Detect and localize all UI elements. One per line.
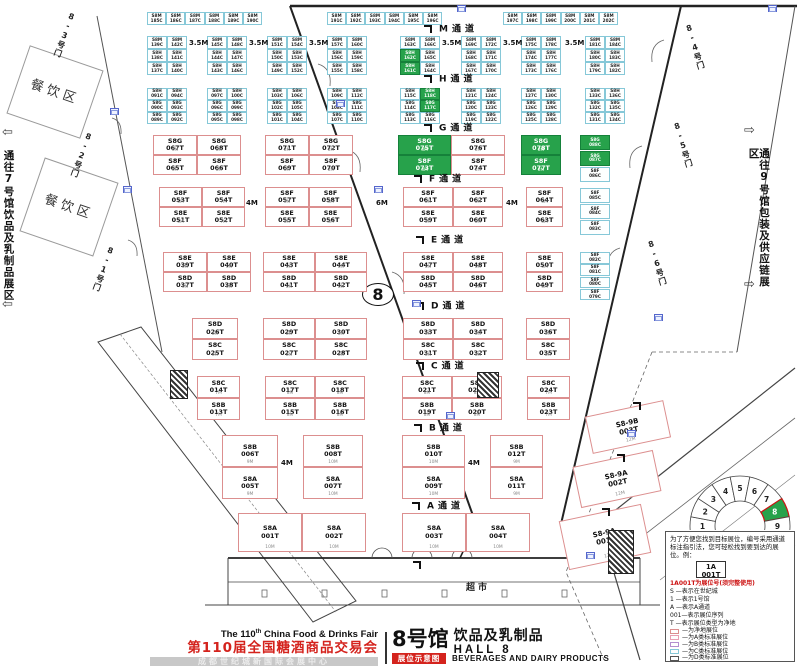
- booth[interactable]: S8F070T8M: [309, 155, 353, 175]
- booth[interactable]: S8D026T8M: [192, 318, 238, 339]
- booth[interactable]: S8H147C: [227, 49, 247, 62]
- booth[interactable]: S8G135C: [605, 100, 625, 112]
- booth[interactable]: S8G123C: [481, 100, 501, 112]
- venue-name: 成都世纪城新国际会展中心: [150, 657, 378, 666]
- booth[interactable]: S8H177C: [541, 49, 561, 62]
- fan-hall-number: 2: [703, 507, 708, 516]
- fire-hydrant-icon: [446, 412, 455, 419]
- booth[interactable]: S8G125C: [521, 112, 541, 124]
- booth[interactable]: S8C032T8M: [453, 339, 503, 360]
- booth[interactable]: S8E039T6M: [163, 252, 207, 272]
- booth[interactable]: S8M184C: [605, 36, 625, 49]
- hall-overview-fan: 123456789: [683, 468, 798, 530]
- booth[interactable]: S8E047T8M: [403, 252, 453, 272]
- booth[interactable]: S8M186C: [166, 12, 185, 25]
- booth[interactable]: S8H143C: [207, 62, 227, 75]
- booth[interactable]: S8H152C: [287, 62, 307, 75]
- booth[interactable]: S8G110C: [347, 112, 367, 124]
- booth[interactable]: S8B015T8M: [265, 398, 315, 420]
- booth[interactable]: S8G113C: [400, 112, 420, 124]
- fan-hall-number: 1: [700, 522, 705, 530]
- booth[interactable]: S8D036T8M: [526, 318, 570, 339]
- booth[interactable]: S8C031T8M: [403, 339, 453, 360]
- aisle-label: M通道: [424, 25, 504, 35]
- fan-hall-number: 4: [723, 487, 728, 496]
- footer-divider: [385, 632, 387, 664]
- booth[interactable]: S8H140C: [167, 62, 187, 75]
- booth[interactable]: S8M190C: [243, 12, 262, 25]
- booth[interactable]: S8M172C: [481, 36, 501, 49]
- booth[interactable]: S8H109C: [327, 88, 347, 100]
- booth[interactable]: S8H170C: [481, 62, 501, 75]
- booth[interactable]: S8H112C: [347, 88, 367, 100]
- fan-hall-number: 8: [772, 507, 777, 516]
- booth[interactable]: S8B012T9M: [490, 435, 543, 467]
- booth[interactable]: S8H183C: [605, 49, 625, 62]
- booth[interactable]: S8H091C: [147, 88, 167, 100]
- booth-type-swatch: [670, 656, 679, 661]
- booth[interactable]: S8F084C: [580, 204, 610, 219]
- booth[interactable]: S8C017T8M: [265, 376, 315, 398]
- booth[interactable]: S8H121C: [461, 88, 481, 100]
- booth[interactable]: S8H127C: [521, 88, 541, 100]
- legend-box: 为了方便您找到目标展位，编号采用通道标注指引法，您可轻松找到要到达的展位。例： …: [665, 531, 795, 662]
- aisle-marker-icon: [617, 454, 625, 462]
- dining-area-label: 餐饮区: [43, 193, 95, 222]
- booth[interactable]: S8A011T9M: [490, 467, 543, 499]
- booth[interactable]: S8F080C: [580, 277, 610, 289]
- booth[interactable]: S8G098C: [227, 112, 247, 124]
- booth[interactable]: S8G102C: [267, 100, 287, 112]
- footer-left: The 110th China Food & Drinks Fair 第110届…: [150, 629, 378, 666]
- booth[interactable]: S8G092C: [167, 112, 187, 124]
- booth-type-swatch: [670, 642, 679, 647]
- aisle-marker-icon: [414, 424, 422, 432]
- booth[interactable]: S8M202C: [599, 12, 618, 25]
- aisle-label: G通道: [424, 124, 504, 134]
- booth[interactable]: S8M188C: [205, 12, 224, 25]
- booth[interactable]: S8A003T10M: [402, 513, 466, 552]
- booth[interactable]: S8H176C: [541, 62, 561, 75]
- booth[interactable]: S8M166C: [420, 36, 440, 49]
- booth[interactable]: S8G114C: [400, 100, 420, 112]
- aisle-marker-icon: [424, 124, 432, 132]
- gap-dimension-label: 3.5M: [565, 40, 587, 48]
- legend-items: S —表示在世纪城1 —表示1号馆A —表示A通道001—表示展位序列T —表示…: [670, 588, 790, 628]
- aisle-marker-icon: [416, 362, 424, 370]
- booth[interactable]: S8H174C: [521, 49, 541, 62]
- booth[interactable]: S8C025T8M: [192, 339, 238, 360]
- booth[interactable]: S8D042T8M: [315, 272, 367, 292]
- booth[interactable]: S8E051T6M: [159, 207, 202, 227]
- booth[interactable]: S8F065T6M: [153, 155, 197, 175]
- fan-hall-number: 7: [764, 495, 769, 504]
- aisle-marker-icon: [424, 25, 432, 33]
- booth[interactable]: S8H149C: [267, 62, 287, 75]
- booth[interactable]: S8M197C: [503, 12, 522, 25]
- left-arrow-icon: ⇦: [2, 126, 13, 139]
- legend-swatches: —为净地展位—为A类标准展位—为B类标准展位—为C类标准展位—为D类标准展位: [670, 628, 790, 662]
- booth[interactable]: S8E055T8M: [265, 207, 309, 227]
- booth[interactable]: S8M201C: [580, 12, 599, 25]
- legend-item: 1 —表示1号馆: [670, 596, 790, 604]
- booth[interactable]: S8H162C: [400, 49, 420, 62]
- gap-dimension-label: 3.5M: [503, 40, 525, 48]
- booth[interactable]: S8B019T8M: [402, 398, 452, 420]
- booth[interactable]: S8M194C: [385, 12, 404, 25]
- booth[interactable]: S8H094C: [167, 88, 187, 100]
- booth[interactable]: S8C035T8M: [526, 339, 570, 360]
- booth[interactable]: S8H100C: [227, 88, 247, 100]
- booth[interactable]: S8H137C: [147, 62, 167, 75]
- booth[interactable]: S8A002T10M: [302, 513, 366, 552]
- fan-hall-number: 5: [737, 484, 742, 493]
- booth[interactable]: S8E044T8M: [315, 252, 367, 272]
- booth[interactable]: S8E059T8M: [403, 207, 453, 227]
- hall-products-cn: 饮品及乳制品: [454, 629, 544, 644]
- booth[interactable]: S8G096C: [207, 100, 227, 112]
- booth[interactable]: S8E056T8M: [309, 207, 352, 227]
- legend-example-line2: 001T: [697, 571, 725, 579]
- supermarket-label: 超市: [466, 584, 490, 593]
- fan-hall-number: 3: [711, 495, 716, 504]
- gap-dimension-label: 6M: [376, 200, 394, 208]
- booth[interactable]: S8E048T8M: [453, 252, 503, 272]
- booth[interactable]: S8H161C: [400, 62, 420, 75]
- legend-item: A —表示A通道: [670, 604, 790, 612]
- booth[interactable]: S8E052T7M: [202, 207, 245, 227]
- booth[interactable]: S8C028T8M: [315, 339, 367, 360]
- booth[interactable]: S8B013T7M: [197, 398, 240, 420]
- aisle-marker-icon: [416, 236, 424, 244]
- booth[interactable]: S8H165C: [420, 49, 440, 62]
- booth[interactable]: S8G120C: [461, 100, 481, 112]
- stairs-hatch: [608, 530, 634, 574]
- booth[interactable]: S8H106C: [287, 88, 307, 100]
- booth[interactable]: S8M198C: [522, 12, 541, 25]
- gap-dimension-label: 3.5M: [309, 40, 331, 48]
- booth[interactable]: S8G116C: [420, 112, 440, 124]
- booth[interactable]: S8E040T6M: [207, 252, 251, 272]
- booth[interactable]: S8D041T8M: [263, 272, 315, 292]
- booth[interactable]: S8G099C: [227, 100, 247, 112]
- booth[interactable]: S8D034T8M: [453, 318, 503, 339]
- booth-type-swatch: [670, 635, 679, 640]
- booth[interactable]: S8C021T8M: [402, 376, 452, 398]
- booth[interactable]: S8G119C: [461, 112, 481, 124]
- booth[interactable]: S8M199C: [541, 12, 560, 25]
- booth[interactable]: S8M181C: [585, 36, 605, 49]
- corridor-to-hall7-label: 通往7号馆饮品及乳制品展区: [3, 150, 14, 314]
- booth-type-swatch: [670, 649, 679, 654]
- fair-name-cn: 第110届全国糖酒商品交易会: [150, 641, 378, 657]
- plan-badge: 展位示意图: [392, 653, 446, 664]
- fire-hydrant-icon: [336, 100, 345, 107]
- booth[interactable]: S8D045T8M: [403, 272, 453, 292]
- right-arrow-icon: ⇨: [744, 278, 755, 291]
- gap-dimension-label: 4M: [506, 200, 524, 208]
- booth[interactable]: S8M196C: [423, 12, 442, 25]
- gap-dimension-label: 3.5M: [249, 40, 271, 48]
- booth[interactable]: S8A007T10M: [303, 467, 363, 499]
- booth[interactable]: S8G067T6M: [153, 135, 197, 155]
- legend-item: 001—表示展位序列: [670, 612, 790, 620]
- booth[interactable]: S8B020T8M: [452, 398, 502, 420]
- gap-dimension-label: 4M: [468, 460, 484, 468]
- booth[interactable]: S8E060T8M: [453, 207, 503, 227]
- booth[interactable]: S8F086C: [580, 167, 610, 182]
- booth[interactable]: S8D030T8M: [315, 318, 367, 339]
- booth[interactable]: S8M139C: [147, 36, 167, 49]
- booth[interactable]: S8G129C: [541, 100, 561, 112]
- booth[interactable]: S8M163C: [400, 36, 420, 49]
- booth[interactable]: S8M169C: [461, 36, 481, 49]
- booth[interactable]: S8H150C: [267, 49, 287, 62]
- booth[interactable]: S8E063T6M: [526, 207, 563, 227]
- booth[interactable]: S8D033T8M: [403, 318, 453, 339]
- left-arrow-icon: ⇦: [2, 298, 13, 311]
- legend-swatch-row: —为D类标准展位: [670, 655, 790, 662]
- booth[interactable]: S8G131C: [585, 112, 605, 124]
- aisle-label: C通道: [416, 362, 496, 372]
- booth[interactable]: S8G117C: [420, 100, 440, 112]
- booth[interactable]: S8D037T6M: [163, 272, 207, 292]
- booth[interactable]: S8G087C: [580, 151, 610, 166]
- booth[interactable]: S8B016T8M: [315, 398, 365, 420]
- legend-example-line1: 1A: [697, 563, 725, 571]
- gap-dimension-label: 4M: [246, 200, 264, 208]
- stairs-hatch: [477, 372, 499, 398]
- booth[interactable]: S8G068T8M: [197, 135, 241, 155]
- aisle-label: H通道: [424, 75, 504, 85]
- aisle-marker-icon: [414, 175, 422, 183]
- fair-name-en: The 110th China Food & Drinks Fair: [150, 629, 378, 641]
- booth[interactable]: S8M189C: [224, 12, 243, 25]
- legend-item: S —表示在世纪城: [670, 588, 790, 596]
- legend-note: 1A001T为展位号(须完整使用): [670, 580, 790, 587]
- booth[interactable]: S8H168C: [461, 49, 481, 62]
- legend-intro: 为了方便您找到目标展位，编号采用通道标注指引法，您可轻松找到要到达的展位。例：: [670, 535, 790, 559]
- booth[interactable]: S8E050T6M: [526, 252, 563, 272]
- aisle-label: D通道: [416, 302, 496, 312]
- booth[interactable]: S8B008T10M: [303, 435, 363, 467]
- booth[interactable]: S8B010T10M: [402, 435, 465, 467]
- booth[interactable]: S8D046T8M: [453, 272, 503, 292]
- hall-floorplan: 餐饮区 餐饮区 超市 通往7号馆饮品及乳制品展区 ⇦ ⇦ 通往9号馆包装及供应链…: [0, 0, 798, 666]
- booth[interactable]: S8M178C: [541, 36, 561, 49]
- booth[interactable]: S8C027T8M: [263, 339, 315, 360]
- booth[interactable]: S8H141C: [167, 49, 187, 62]
- booth[interactable]: S8H167C: [461, 62, 481, 75]
- booth[interactable]: S8C018T8M: [315, 376, 365, 398]
- booth[interactable]: S8G128C: [541, 112, 561, 124]
- booth[interactable]: S8F062T8M: [453, 187, 503, 207]
- booth[interactable]: S8H103C: [267, 88, 287, 100]
- stairs-hatch: [170, 370, 188, 399]
- booth[interactable]: S8G105C: [287, 100, 307, 112]
- booth[interactable]: S8F074T8M: [451, 155, 505, 175]
- booth[interactable]: S8C024T7M: [527, 376, 570, 398]
- booth[interactable]: S8G093C: [167, 100, 187, 112]
- booth[interactable]: S8H155C: [327, 62, 347, 75]
- corridor-to-hall9-label: 通往9号馆包装及供应链展区: [748, 148, 769, 298]
- aisle-label: E通道: [416, 236, 496, 246]
- booth[interactable]: S8F085C: [580, 188, 610, 203]
- booth[interactable]: S8M148C: [227, 36, 247, 49]
- hall-products-en: BEVERAGES AND DAIRY PRODUCTS: [452, 655, 609, 663]
- aisle-marker-icon: [424, 75, 432, 83]
- aisle-label: F通道: [414, 175, 494, 185]
- booth[interactable]: S8A004T10M: [466, 513, 530, 552]
- booth[interactable]: S8G111C: [347, 100, 367, 112]
- fan-hall-number: 9: [775, 522, 780, 530]
- fire-hydrant-icon: [457, 5, 466, 12]
- dining-area-label: 餐饮区: [29, 78, 81, 107]
- booth[interactable]: S8H138C: [147, 49, 167, 62]
- booth[interactable]: S8F073T8M: [398, 155, 451, 175]
- booth[interactable]: S8F083C: [580, 220, 610, 235]
- booth[interactable]: S8H159C: [347, 49, 367, 62]
- booth[interactable]: S8M200C: [561, 12, 580, 25]
- booth[interactable]: S8M191C: [327, 12, 346, 25]
- booth[interactable]: S8H156C: [327, 49, 347, 62]
- booth[interactable]: S8A005T9M: [222, 467, 278, 499]
- booth[interactable]: S8M160C: [347, 36, 367, 49]
- aisle-label: B通道: [414, 424, 494, 434]
- booth[interactable]: S8H153C: [287, 49, 307, 62]
- booth[interactable]: S8H115C: [400, 88, 420, 100]
- booth[interactable]: S8M154C: [287, 36, 307, 49]
- fire-hydrant-icon: [586, 552, 595, 559]
- booth[interactable]: S8F057T8M: [265, 187, 309, 207]
- booth[interactable]: S8G076T8M: [451, 135, 505, 155]
- booth[interactable]: S8G132C: [585, 100, 605, 112]
- booth[interactable]: S8H136C: [605, 88, 625, 100]
- gap-dimension-label: 3.5M: [189, 40, 211, 48]
- booth[interactable]: S8H171C: [481, 49, 501, 62]
- fire-hydrant-icon: [654, 314, 663, 321]
- booth[interactable]: S8M192C: [346, 12, 365, 25]
- booth[interactable]: S8B006T9M: [222, 435, 278, 467]
- aisle-marker-icon: [602, 508, 610, 516]
- booth[interactable]: S8G104C: [287, 112, 307, 124]
- booth[interactable]: S8H124C: [481, 88, 501, 100]
- booth[interactable]: S8H173C: [521, 62, 541, 75]
- booth[interactable]: S8H146C: [227, 62, 247, 75]
- gap-dimension-label: 3.5M: [442, 40, 464, 48]
- right-arrow-icon: ⇨: [744, 124, 755, 137]
- booth[interactable]: S8H164C: [420, 62, 440, 75]
- booth[interactable]: S8G075T8M: [398, 135, 451, 155]
- booth[interactable]: S8G101C: [267, 112, 287, 124]
- booth[interactable]: S8D038T6M: [207, 272, 251, 292]
- booth[interactable]: S8E043T8M: [263, 252, 315, 272]
- booth[interactable]: S8M185C: [147, 12, 166, 25]
- booth[interactable]: S8G088C: [580, 135, 610, 150]
- booth[interactable]: S8D029T8M: [263, 318, 315, 339]
- booth[interactable]: S8B023T7M: [527, 398, 570, 420]
- aisle-marker-icon: [413, 561, 421, 569]
- booth[interactable]: S8H130C: [541, 88, 561, 100]
- booth[interactable]: S8H158C: [347, 62, 367, 75]
- booth[interactable]: S8D049T6M: [526, 272, 563, 292]
- booth[interactable]: S8A001T10M: [238, 513, 302, 552]
- booth[interactable]: S8G078T8M: [521, 135, 561, 155]
- booth[interactable]: S8G095C: [207, 112, 227, 124]
- booth[interactable]: S8F081C: [580, 264, 610, 276]
- legend-example-booth: 1A 001T: [696, 561, 726, 578]
- booth[interactable]: S8F077T8M: [521, 155, 561, 175]
- booth[interactable]: S8G071T8M: [265, 135, 309, 155]
- aisle-marker-icon: [633, 402, 641, 410]
- fan-hall-number: 6: [752, 487, 757, 496]
- booth[interactable]: S8F066T8M: [197, 155, 241, 175]
- fire-hydrant-icon: [768, 5, 777, 12]
- fire-hydrant-icon: [374, 186, 383, 193]
- booth[interactable]: S8F054T7M: [202, 187, 245, 207]
- booth[interactable]: S8G122C: [481, 112, 501, 124]
- booth[interactable]: S8M142C: [167, 36, 187, 49]
- booth[interactable]: S8A009T10M: [402, 467, 465, 499]
- aisle-label: A通道: [412, 502, 492, 512]
- booth[interactable]: S8M193C: [365, 12, 384, 25]
- booth[interactable]: S8H179C: [585, 62, 605, 75]
- booth[interactable]: S8F069T8M: [265, 155, 309, 175]
- fire-hydrant-icon: [627, 430, 636, 437]
- fire-hydrant-icon: [110, 108, 119, 115]
- booth[interactable]: S8F082C: [580, 252, 610, 264]
- fire-hydrant-icon: [123, 186, 132, 193]
- booth[interactable]: S8F061T8M: [403, 187, 453, 207]
- booth[interactable]: S8G134C: [605, 112, 625, 124]
- aisle-marker-icon: [412, 502, 420, 510]
- booth-type-swatch: [670, 629, 679, 634]
- booth[interactable]: S8F058T8M: [309, 187, 352, 207]
- booth[interactable]: S8G072T8M: [309, 135, 353, 155]
- booth[interactable]: S8G126C: [521, 100, 541, 112]
- booth[interactable]: S8H118C: [420, 88, 440, 100]
- booth[interactable]: S8G107C: [327, 112, 347, 124]
- booth[interactable]: S8H133C: [585, 88, 605, 100]
- booth[interactable]: S8C014T7M: [197, 376, 240, 398]
- booth[interactable]: S8H180C: [585, 49, 605, 62]
- booth[interactable]: S8H182C: [605, 62, 625, 75]
- booth[interactable]: S8F079C: [580, 289, 610, 301]
- booth[interactable]: S8M187C: [185, 12, 204, 25]
- booth[interactable]: S8G090C: [147, 100, 167, 112]
- booth[interactable]: S8F064T6M: [526, 187, 563, 207]
- fire-hydrant-icon: [412, 300, 421, 307]
- gap-dimension-label: 4M: [281, 460, 297, 468]
- booth[interactable]: S8M195C: [404, 12, 423, 25]
- booth[interactable]: S8H097C: [207, 88, 227, 100]
- booth[interactable]: S8F053T6M: [159, 187, 202, 207]
- booth[interactable]: S8H144C: [207, 49, 227, 62]
- booth[interactable]: S8G089C: [147, 112, 167, 124]
